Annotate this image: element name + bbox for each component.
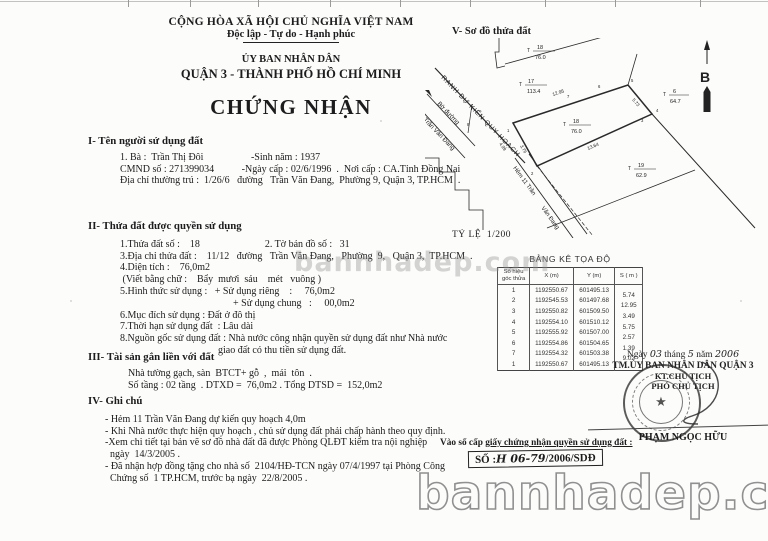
use-form-shared-line: + Sử dụng chung : 00,0m2 [233, 298, 473, 310]
scanned-certificate-page: CỘNG HÒA XÃ HỘI CHỦ NGHĨA VIỆT NAM Độc l… [0, 0, 768, 541]
use-purpose-line: 6.Mục đích sử dụng : Đất ở đô thị [120, 310, 473, 322]
issuer-name: ỦY BAN NHÂN DÂN [145, 54, 437, 65]
section-1-owner: I- Tên người sử dụng đất 1. Bà : Trần Th… [88, 136, 458, 187]
note-line: - Khi Nhà nước thực hiện quy hoạch , chủ… [105, 426, 468, 438]
issuer-locality: QUẬN 3 - THÀNH PHỐ HỒ CHÍ MINH [145, 67, 437, 82]
parcel-19-boundary-line [547, 170, 695, 228]
point-number-1: 1 [507, 128, 510, 133]
registry-label: Vào sổ cấp giấy chứng nhận quyền sử dụng… [440, 438, 633, 448]
scan-speck [70, 300, 72, 302]
north-label: B [700, 69, 710, 85]
point-number-3: 3 [641, 118, 644, 123]
parcel-6-label: T 6 64.7 [663, 89, 689, 105]
note-line: ngày 14/3/2005 . [105, 449, 468, 461]
scan-tick [128, 0, 129, 7]
registry-number-box: SỐ :H 06-79/2006/SDĐ [468, 450, 603, 467]
svg-text:76.0: 76.0 [535, 55, 546, 61]
owner-id-line: CMND số : 271399034 -Ngày cấp : 02/6/199… [120, 164, 458, 176]
point-number-5: 5 [631, 78, 634, 83]
svg-text:64.7: 64.7 [670, 99, 681, 105]
handwritten-registry-number: H 06-79 [496, 452, 546, 466]
table-row: 61192554.86 601504.651.39 [498, 338, 643, 349]
scan-tick [545, 0, 546, 7]
scan-speck [380, 120, 382, 122]
parcel-sketch-map: RANH DỰ KIẾN QUY HOẠCH Bờ đường Trần Văn… [425, 38, 768, 238]
note-line: Chứng số 1 TP.HCM, trước bạ ngày 22/8/20… [105, 473, 468, 485]
table-row: 51192555.92 601507.002.57 [498, 327, 643, 338]
scan-tick [470, 0, 471, 7]
parcel-18-area: 76.0 [571, 129, 582, 135]
svg-text:T: T [663, 92, 666, 98]
svg-text:113.4: 113.4 [527, 89, 540, 95]
svg-text:T: T [628, 166, 631, 172]
svg-text:17: 17 [528, 79, 534, 85]
road-edge-label: Bờ đường [436, 101, 461, 127]
svg-text:62.9: 62.9 [636, 173, 647, 179]
owner-address-line: Địa chỉ thường trú : 1/26/6 đường Trần V… [120, 175, 458, 187]
scan-tick [615, 0, 616, 7]
table-row: 41192554.10 601510.125.75 [498, 317, 643, 328]
watermark-bottom: bannhadep.com [416, 466, 768, 521]
col-header-y: Y (m) [573, 268, 615, 285]
owner-name-line: 1. Bà : Trần Thị Đôi -Sinh năm : 1937 [120, 152, 458, 164]
parcel-18-outline [513, 85, 652, 166]
alley-dashed-line [537, 166, 593, 236]
point-number-7: 7 [567, 94, 570, 99]
watermark-middle: bannhadep.com [294, 247, 550, 278]
stepped-boundary-line [425, 158, 483, 230]
section-4-notes: IV- Ghi chú - Hẻm 11 Trần Văn Đang dự ki… [88, 396, 468, 485]
parcel-19-label: T 19 62.9 [628, 163, 656, 179]
section-2-heading: II- Thửa đất được quyền sử dụng [88, 221, 473, 233]
svg-text:18: 18 [573, 119, 579, 125]
svg-text:6: 6 [673, 89, 676, 95]
alley-line [515, 158, 573, 238]
svg-text:18: 18 [537, 45, 543, 51]
national-title: CỘNG HÒA XÃ HỘI CHỦ NGHĨA VIỆT NAM [145, 16, 437, 28]
scan-tick [330, 0, 331, 7]
north-arrow-bar [704, 86, 711, 112]
use-term-line: 7.Thời hạn sử dụng đất : Lâu dài [120, 321, 473, 333]
section-3-heading: III- Tài sản gắn liền với đất [88, 352, 458, 364]
map-scale: TỶ LỆ 1/200 [452, 230, 511, 240]
house-structure-line: Nhà tường gạch, sàn BTCT+ gỗ , mái tôn . [128, 368, 458, 380]
scan-tick [700, 0, 701, 7]
parcel-17-label: T 17 113.4 [519, 79, 547, 95]
parcel-18-top-label: T 18 76.0 [527, 45, 555, 61]
right-boundary-line [652, 114, 755, 228]
point-number-2: 2 [531, 171, 534, 176]
scan-speck [740, 300, 742, 302]
handwritten-day: 03 [650, 349, 662, 360]
house-floors-line: Số tầng : 02 tầng . DTXD = 76,0m2 . Tổng… [128, 380, 458, 392]
document-header: CỘNG HÒA XÃ HỘI CHỦ NGHĨA VIỆT NAM Độc l… [145, 16, 437, 120]
document-title: CHỨNG NHẬN [145, 95, 437, 120]
svg-text:19: 19 [638, 163, 644, 169]
north-arrow-head [704, 40, 710, 50]
use-origin-line-1: 8.Nguồn gốc sử dụng đất : Nhà nước công … [120, 333, 473, 345]
motto-underline [243, 42, 339, 43]
svg-text:T: T [527, 48, 530, 54]
scan-tick [190, 0, 191, 7]
svg-text:T: T [563, 122, 566, 128]
table-row: 21192545.53 601497.6812.95 [498, 296, 643, 307]
section-5-heading: V- Sơ đồ thửa đất [452, 26, 531, 37]
section-3-assets: III- Tài sản gắn liền với đất Nhà tường … [88, 352, 458, 391]
note-line: - Hẻm 11 Trần Văn Đang dự kiến quy hoạch… [105, 414, 468, 426]
national-motto: Độc lập - Tự do - Hạnh phúc [145, 29, 437, 40]
scan-tick [400, 0, 401, 7]
signature-stroke [668, 358, 768, 430]
use-form-private-line: 5.Hình thức sử dụng : + Sử dụng riêng : … [120, 286, 473, 298]
section-4-heading: IV- Ghi chú [88, 396, 468, 408]
parcel-18-main-label: T 18 76.0 [563, 119, 591, 135]
point-number-4: 4 [656, 108, 659, 113]
col-header-s: S ( m ) [615, 268, 643, 285]
stamp-star-icon: ★ [655, 394, 667, 410]
north-arrow: B [700, 40, 711, 112]
svg-text:T: T [519, 82, 522, 88]
point-number-6: 6 [598, 84, 601, 89]
section-2-parcel: II- Thửa đất được quyền sử dụng 1.Thửa đ… [88, 221, 473, 357]
scan-top-line [0, 1, 768, 2]
top-notch-line [495, 38, 505, 68]
note-line: -Xem chi tiết tại bản vẽ sơ đồ nhà đất đ… [105, 437, 468, 449]
note-line: - Đã nhận hợp đồng tặng cho nhà số 2104/… [105, 461, 468, 473]
table-row: 11192550.67 601495.135.74 [498, 285, 643, 296]
section-1-heading: I- Tên người sử dụng đất [88, 136, 458, 148]
dim-top-edge: 12.95 [552, 88, 566, 98]
scan-tick [258, 0, 259, 7]
